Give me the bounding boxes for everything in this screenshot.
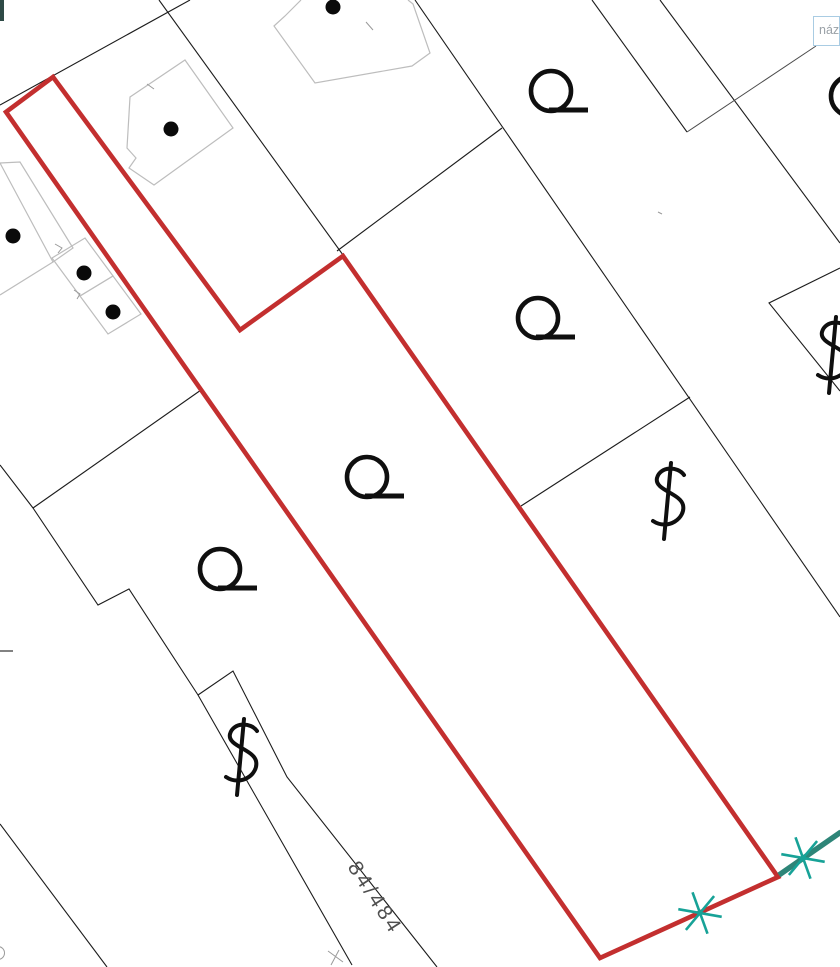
map-edge-artifact xyxy=(0,0,4,21)
cadastral-map-canvas[interactable]: 84/484 xyxy=(0,0,840,967)
tooltip-leader-line xyxy=(687,46,816,132)
orchard-symbol xyxy=(518,298,575,338)
boundary-cross-mark xyxy=(328,950,343,965)
building-point-symbol xyxy=(6,229,21,244)
orchard-symbol xyxy=(200,549,257,589)
garden-symbol xyxy=(818,317,840,393)
garden-symbol xyxy=(226,719,257,795)
parcel-number-label: 84/484 xyxy=(343,857,407,938)
map-tooltip-input[interactable]: náz xyxy=(813,16,840,46)
parcel-boundary-line xyxy=(159,0,343,255)
parcel-boundary-line xyxy=(592,0,687,132)
parcel-boundary-line xyxy=(0,824,107,967)
surveyed-boundary-line xyxy=(779,832,840,875)
building-point-symbol xyxy=(326,0,341,15)
building-outline xyxy=(127,60,233,185)
building-outline xyxy=(0,262,53,295)
clipped-symbol-arc xyxy=(0,947,5,960)
orchard-symbol xyxy=(831,76,840,116)
survey-marker-icon xyxy=(781,837,824,878)
building-point-symbol xyxy=(106,305,121,320)
parcel-boundary-line xyxy=(337,128,502,251)
building-point-symbol xyxy=(164,122,179,137)
building-outline xyxy=(274,0,430,83)
parcel-boundary-line xyxy=(33,390,201,508)
cadastral-map-viewport[interactable]: 84/484 náz xyxy=(0,0,840,967)
garden-symbol xyxy=(653,463,684,539)
parcel-boundary-line xyxy=(0,0,190,105)
orchard-symbol xyxy=(531,71,588,111)
building-point-symbol xyxy=(77,266,92,281)
stepped-parcel-boundary-line xyxy=(0,465,352,965)
highlighted-parcel-outline[interactable] xyxy=(6,77,778,958)
